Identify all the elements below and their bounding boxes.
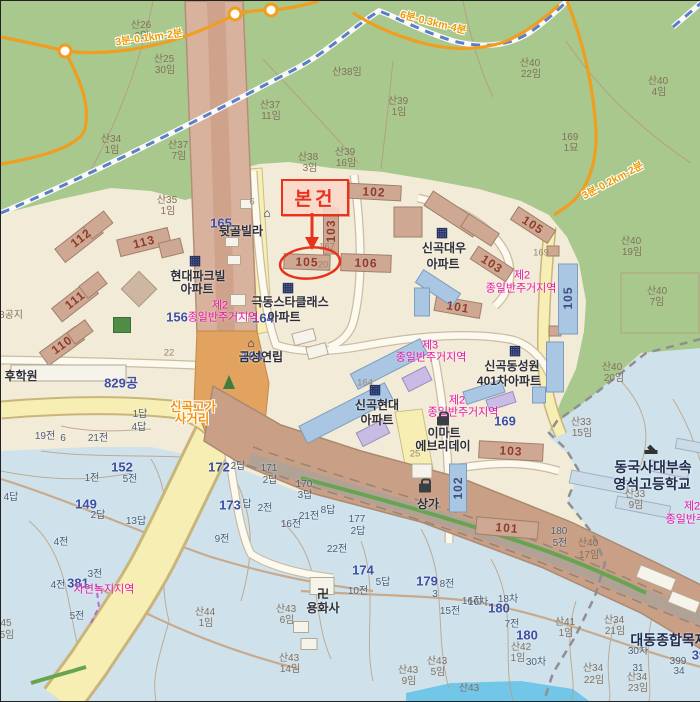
bag-icon — [437, 417, 449, 426]
map-canvas[interactable]: 산263임산2530임산341임산3711임산377임산383임산3916임산3… — [0, 0, 700, 702]
apartment-icon: ▦ — [282, 281, 294, 294]
bag-icon — [419, 484, 431, 493]
subject-callout-box: 본건 — [281, 179, 349, 216]
map-icons-layer: ▦▦▦▦▦⌂⌂卍 — [1, 1, 700, 701]
apartment-icon: ▦ — [436, 226, 448, 239]
apartment-icon: ▦ — [509, 344, 521, 357]
apartment-icon: ▦ — [189, 254, 201, 267]
subject-callout-label: 본건 — [295, 184, 336, 211]
apartment-icon: ▦ — [369, 383, 381, 396]
house-icon: ⌂ — [247, 337, 254, 349]
school-icon — [645, 450, 658, 454]
temple-icon: 卍 — [317, 588, 329, 600]
house-icon: ⌂ — [263, 207, 270, 219]
